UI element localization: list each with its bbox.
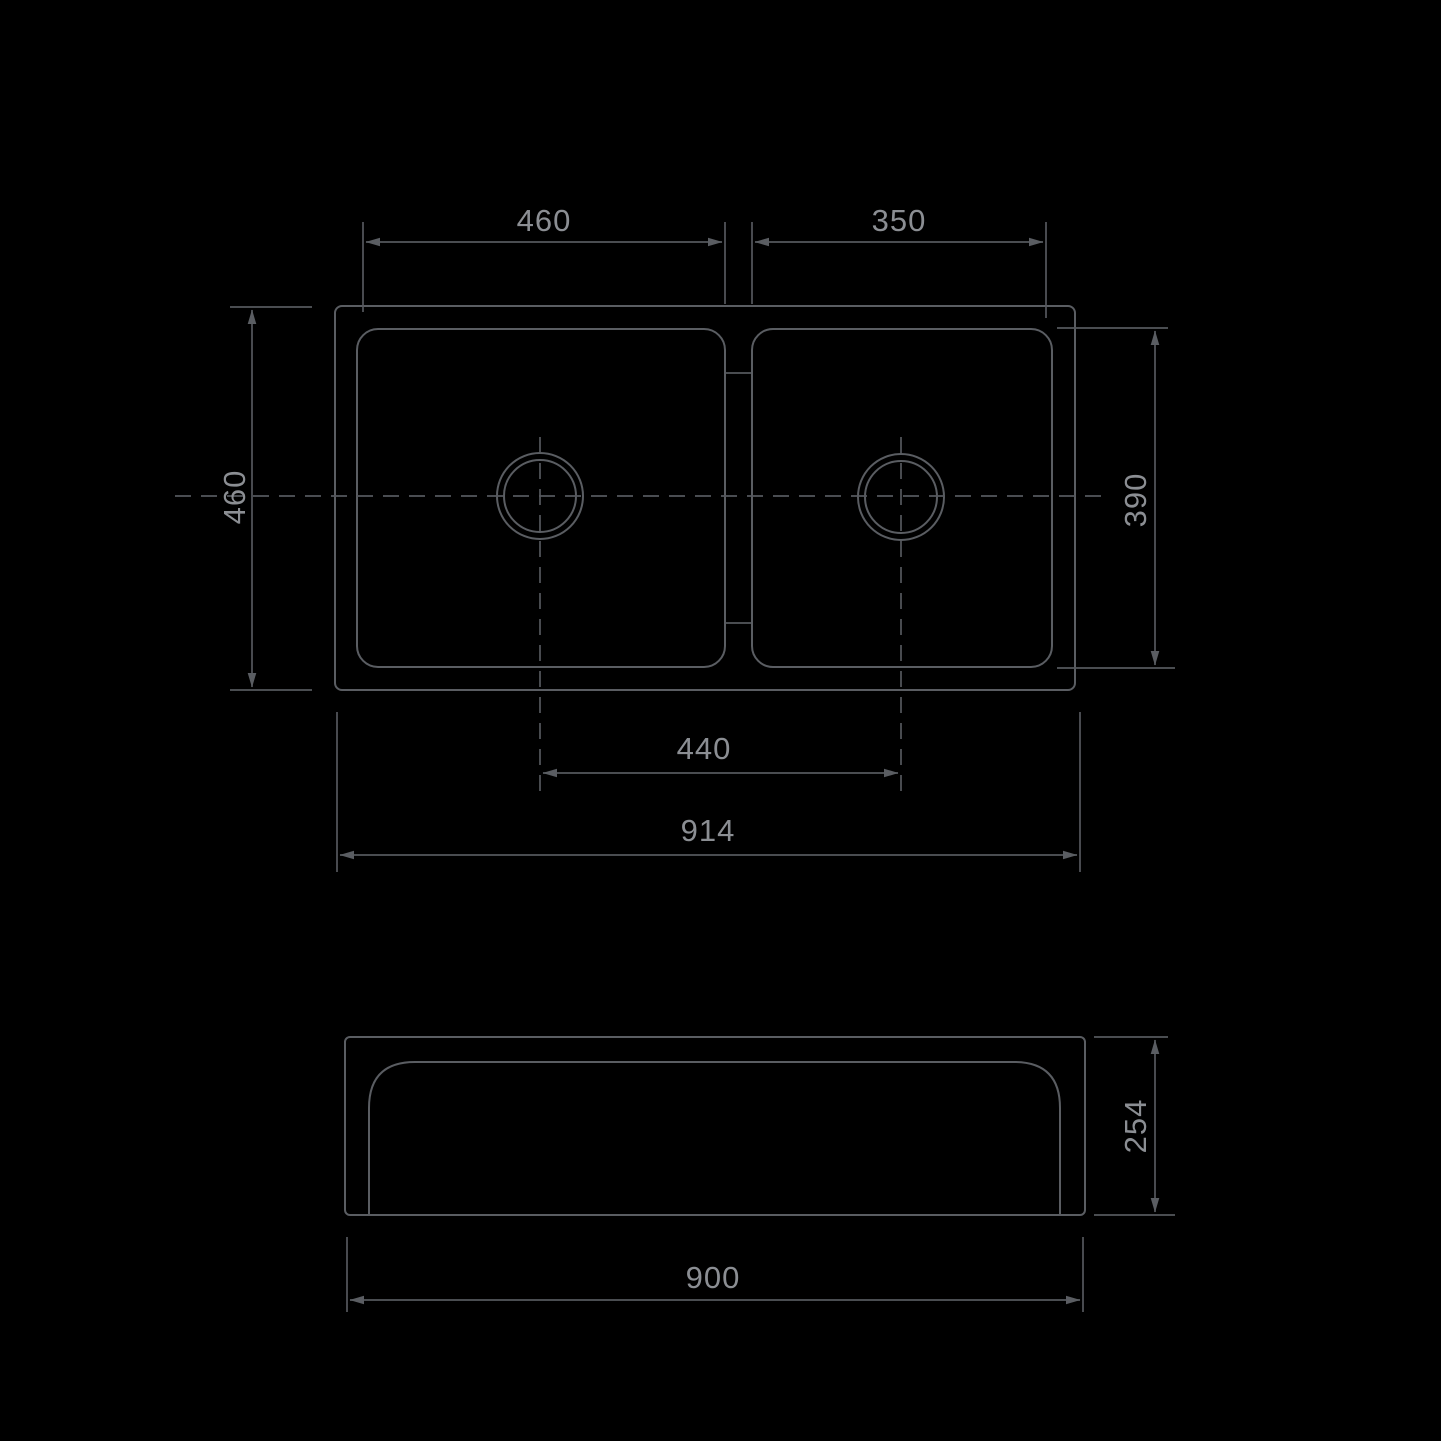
dimension-label: 460 (217, 470, 252, 525)
apron-outline (345, 1037, 1085, 1215)
right-bowl-outline (752, 329, 1052, 667)
dimension-overall-depth: 460 (217, 307, 312, 690)
dimension-base-width: 900 (347, 1237, 1083, 1312)
dimension-drain-spacing: 440 (543, 731, 898, 773)
dimension-label: 900 (686, 1260, 741, 1295)
dimension-left-bowl-width: 460 (363, 203, 725, 312)
dimension-label: 390 (1118, 473, 1153, 528)
apron-panel-outline (369, 1062, 1060, 1215)
left-bowl-outline (357, 329, 725, 667)
dimension-label: 914 (681, 813, 736, 848)
dimension-apron-height: 254 (1094, 1037, 1175, 1215)
dimension-label: 350 (872, 203, 927, 238)
dimension-label: 440 (677, 731, 732, 766)
dimension-label: 460 (517, 203, 572, 238)
sink-technical-drawing: 460 350 460 390 440 914 (0, 0, 1441, 1441)
plan-view (175, 306, 1110, 800)
dimension-label: 254 (1118, 1099, 1153, 1154)
dimension-right-bowl-width: 350 (752, 203, 1046, 318)
sink-rim-outline (335, 306, 1075, 690)
front-view (345, 1037, 1085, 1215)
